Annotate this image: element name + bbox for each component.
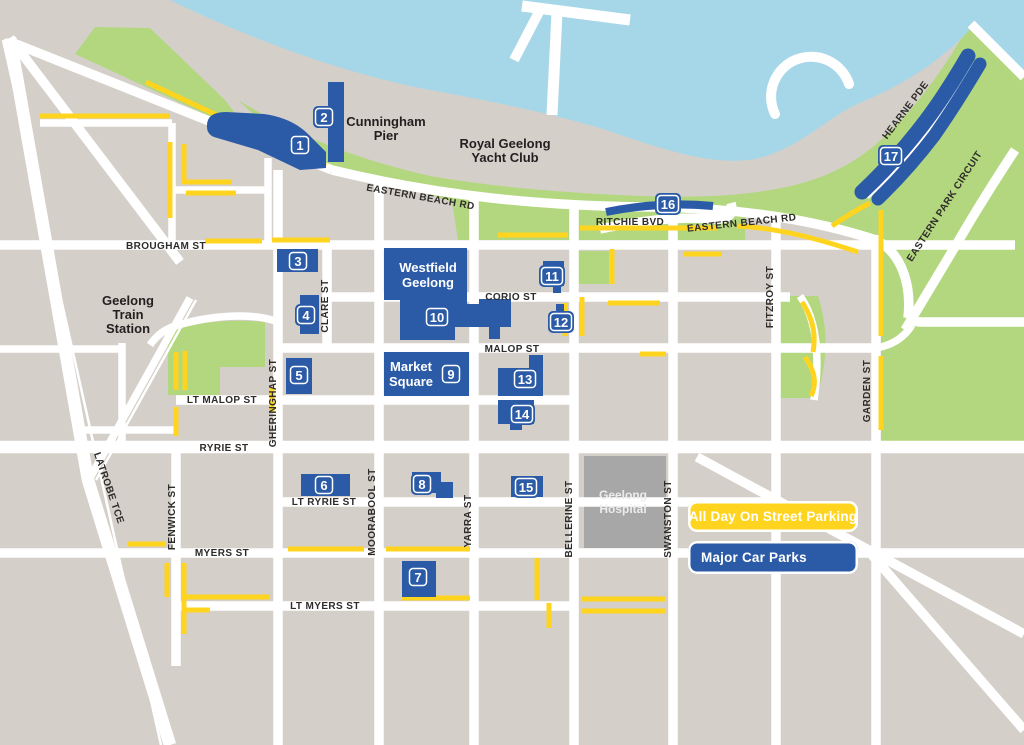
- svg-text:Hospital: Hospital: [599, 502, 646, 516]
- legend-major-car-parks-label: Major Car Parks: [701, 550, 807, 565]
- car-park-badge-17: 17: [878, 145, 904, 167]
- svg-text:Station: Station: [106, 321, 150, 336]
- street-label-brougham: BROUGHAM ST: [126, 241, 206, 252]
- street-label-clare: CLARE ST: [320, 279, 331, 332]
- car-park-badge-6: 6: [313, 474, 335, 496]
- label-westfield-geelong: Westfield: [399, 260, 457, 275]
- svg-text:8: 8: [418, 477, 425, 492]
- car-park-badge-14: 14: [509, 403, 535, 425]
- label-geelong-hospital: Geelong: [599, 488, 647, 502]
- geelong-parking-map: BROUGHAM ST EASTERN BEACH RD RITCHIE BVD…: [0, 0, 1024, 745]
- street-label-ritchie-bvd: RITCHIE BVD: [596, 217, 664, 228]
- car-park-badge-1: 1: [289, 134, 311, 156]
- svg-text:1: 1: [296, 138, 303, 153]
- car-park-badge-3: 3: [287, 250, 309, 272]
- car-park-badge-12: 12: [548, 311, 574, 333]
- svg-text:2: 2: [320, 110, 327, 125]
- svg-text:3: 3: [294, 254, 301, 269]
- street-label-bellerine: BELLERINE ST: [564, 480, 575, 557]
- svg-text:4: 4: [302, 308, 310, 323]
- map-canvas: BROUGHAM ST EASTERN BEACH RD RITCHIE BVD…: [0, 0, 1024, 745]
- label-cunningham-pier: Cunningham: [346, 114, 425, 129]
- street-label-lt-myers: LT MYERS ST: [290, 601, 360, 612]
- label-yacht-club: Royal Geelong: [459, 136, 550, 151]
- street-label-garden: GARDEN ST: [862, 360, 873, 423]
- svg-text:Pier: Pier: [374, 128, 399, 143]
- street-label-swanston: SWANSTON ST: [663, 480, 674, 558]
- legend-all-day-label: All Day On Street Parking: [689, 509, 858, 524]
- street-label-myers: MYERS ST: [195, 548, 249, 559]
- car-park-badge-16: 16: [655, 193, 681, 215]
- street-label-lt-ryrie: LT RYRIE ST: [292, 497, 356, 508]
- label-train-station: Geelong: [102, 293, 154, 308]
- label-market-square: Market: [390, 359, 433, 374]
- svg-text:15: 15: [519, 480, 533, 495]
- car-park-badge-7: 7: [407, 566, 429, 588]
- car-park-badge-10: 10: [424, 306, 450, 328]
- svg-text:9: 9: [447, 367, 454, 382]
- car-park-badge-8: 8: [411, 473, 433, 495]
- svg-text:7: 7: [414, 570, 421, 585]
- svg-text:12: 12: [554, 315, 568, 330]
- svg-text:10: 10: [430, 310, 444, 325]
- car-park-badge-11: 11: [539, 265, 565, 287]
- car-park-badge-2: 2: [313, 106, 335, 128]
- car-park-badge-5: 5: [288, 364, 310, 386]
- svg-text:Train: Train: [112, 307, 143, 322]
- svg-text:14: 14: [515, 407, 530, 422]
- legend-major-car-parks: Major Car Parks: [688, 541, 858, 574]
- park-corio-pocket: [578, 251, 609, 284]
- street-label-fitzroy: FITZROY ST: [765, 266, 776, 328]
- street-label-fenwick: FENWICK ST: [167, 484, 178, 550]
- street-label-lt-malop: LT MALOP ST: [187, 395, 257, 406]
- car-park-badge-4: 4: [295, 304, 317, 326]
- svg-text:5: 5: [295, 368, 302, 383]
- street-label-moorabool: MOORABOOL ST: [367, 468, 378, 555]
- svg-text:Yacht Club: Yacht Club: [471, 150, 538, 165]
- street-label-malop: MALOP ST: [485, 344, 540, 355]
- legend-all-day-street-parking: All Day On Street Parking: [688, 501, 858, 532]
- street-label-yarra: YARRA ST: [463, 494, 474, 547]
- svg-text:16: 16: [661, 197, 675, 212]
- map-legend: All Day On Street Parking Major Car Park…: [688, 501, 858, 574]
- car-park-badge-13: 13: [512, 368, 538, 390]
- svg-text:11: 11: [545, 269, 559, 284]
- street-label-gheringhap: GHERINGHAP ST: [268, 359, 279, 447]
- street-label-ryrie: RYRIE ST: [200, 443, 249, 454]
- car-park-badge-9: 9: [440, 363, 462, 385]
- svg-text:13: 13: [518, 372, 532, 387]
- svg-text:17: 17: [884, 149, 898, 164]
- svg-text:6: 6: [320, 478, 327, 493]
- svg-text:Square: Square: [389, 374, 433, 389]
- car-park-badge-15: 15: [513, 476, 539, 498]
- street-label-corio: CORIO ST: [485, 292, 537, 303]
- svg-text:Geelong: Geelong: [402, 275, 454, 290]
